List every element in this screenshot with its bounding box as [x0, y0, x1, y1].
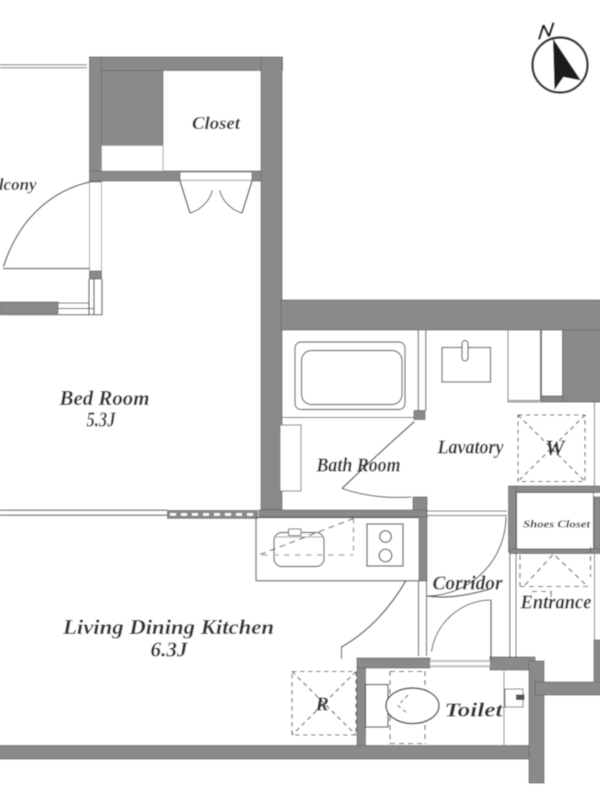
svg-text:5.3J: 5.3J — [87, 408, 117, 432]
svg-text:Corridor: Corridor — [433, 574, 503, 595]
svg-text:W: W — [545, 435, 566, 460]
svg-text:Closet: Closet — [192, 113, 241, 133]
svg-text:Bed Room: Bed Room — [59, 386, 150, 410]
svg-text:Toilet: Toilet — [445, 700, 505, 722]
svg-text:Entrance: Entrance — [520, 592, 592, 614]
svg-text:6.3J: 6.3J — [151, 638, 190, 662]
svg-text:Balcony: Balcony — [0, 175, 37, 194]
svg-text:Living Dining Kitchen: Living Dining Kitchen — [62, 615, 274, 639]
svg-text:Lavatory: Lavatory — [437, 438, 504, 459]
svg-text:Shoes Closet: Shoes Closet — [523, 519, 591, 531]
svg-text:Bath Room: Bath Room — [316, 456, 401, 477]
svg-text:R: R — [315, 694, 329, 716]
